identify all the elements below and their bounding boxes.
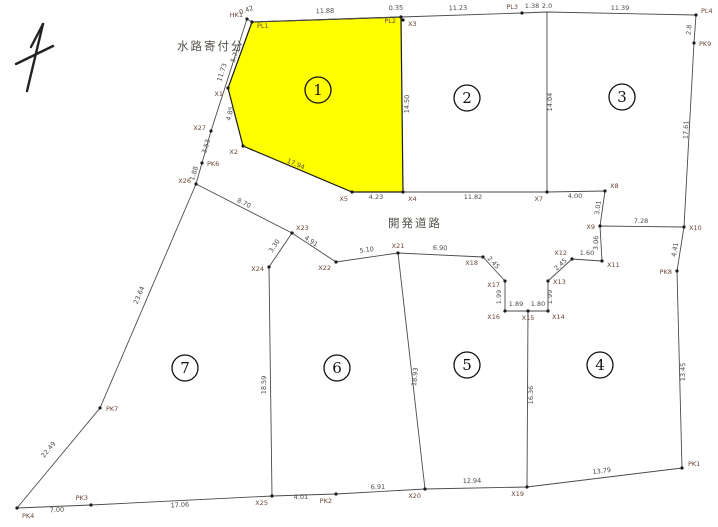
survey-point-PK7 bbox=[98, 406, 101, 409]
distance-label: 1.60 bbox=[580, 249, 594, 257]
point-label-X7: X7 bbox=[534, 195, 543, 203]
parcel-1-highlight bbox=[228, 17, 403, 192]
parcel-layer bbox=[228, 17, 403, 192]
distance-label: 12.94 bbox=[463, 477, 482, 485]
survey-point-X27 bbox=[209, 129, 212, 132]
point-label-X25: X25 bbox=[255, 499, 268, 507]
point-label-PK9: PK9 bbox=[699, 40, 711, 48]
survey-point-PK1 bbox=[680, 466, 683, 469]
point-label-PK6: PK6 bbox=[207, 160, 219, 168]
point-label-PL4: PL4 bbox=[701, 7, 713, 15]
distance-label: 4.41 bbox=[670, 242, 680, 258]
parcel-number-2: 2 bbox=[462, 89, 472, 107]
point-label-X19: X19 bbox=[511, 490, 524, 498]
point-label-X10: X10 bbox=[689, 224, 702, 232]
parcel-number-5: 5 bbox=[462, 356, 472, 374]
point-label-X24: X24 bbox=[251, 265, 264, 273]
point-label-X13: X13 bbox=[553, 278, 566, 286]
point-label-PK3: PK3 bbox=[76, 494, 88, 502]
point-label-PK8: PK8 bbox=[660, 268, 672, 276]
distance-label: 11.73 bbox=[215, 62, 228, 82]
point-label-PK2: PK2 bbox=[320, 497, 332, 505]
point-label-X18: X18 bbox=[465, 259, 478, 267]
parcel4-northwest-corner bbox=[600, 226, 602, 261]
parcel-number-7: 7 bbox=[180, 359, 190, 377]
survey-point-X20 bbox=[423, 487, 426, 490]
survey-point-PL1 bbox=[250, 20, 253, 23]
distance-label: 4.23 bbox=[369, 193, 383, 201]
parcel-number-3: 3 bbox=[617, 88, 627, 106]
survey-point-PK3 bbox=[89, 503, 92, 506]
distance-label: 7.28 bbox=[634, 217, 648, 225]
survey-point-PK2 bbox=[334, 492, 337, 495]
point-label-PK4: PK4 bbox=[22, 512, 34, 520]
point-label-X14: X14 bbox=[552, 313, 565, 321]
left-boundary bbox=[17, 184, 196, 508]
distance-label: 22.49 bbox=[39, 440, 57, 459]
right-boundary bbox=[677, 15, 696, 468]
distance-label: 1.99 bbox=[495, 290, 503, 304]
survey-point-PL4 bbox=[694, 13, 697, 16]
point-label-PK7: PK7 bbox=[106, 405, 118, 413]
point-label-X8: X8 bbox=[610, 182, 619, 190]
road-south-edge bbox=[292, 233, 483, 262]
distance-label: 5.10 bbox=[359, 245, 374, 255]
survey-point-PL3 bbox=[520, 11, 523, 14]
point-label-X5: X5 bbox=[339, 195, 348, 203]
survey-point-X11 bbox=[600, 259, 603, 262]
survey-point-X7 bbox=[545, 190, 548, 193]
point-label-X23: X23 bbox=[296, 224, 309, 232]
distance-label: 3.53 bbox=[200, 138, 212, 154]
water-channel-label: 水路寄付分 bbox=[177, 39, 245, 53]
survey-point-X23 bbox=[290, 231, 293, 234]
survey-point-X2 bbox=[241, 144, 244, 147]
survey-point-X22 bbox=[334, 260, 337, 263]
survey-map-page: HK1PL1PL2X3PL3PL4PK9X10PK8PK1X19X20PK2X2… bbox=[0, 0, 718, 527]
distance-label: 13.45 bbox=[679, 363, 687, 382]
distance-label: 1.88 bbox=[188, 165, 200, 181]
distance-label: 13.79 bbox=[592, 466, 611, 476]
distance-label: 7.00 bbox=[49, 506, 64, 515]
distance-label: 18.59 bbox=[260, 376, 268, 395]
survey-point-X14 bbox=[546, 309, 549, 312]
survey-point-X26 bbox=[194, 182, 197, 185]
distance-label: 1.89 bbox=[509, 300, 523, 308]
point-label-X27: X27 bbox=[193, 124, 206, 132]
survey-point-X3 bbox=[401, 18, 404, 21]
survey-point-X24 bbox=[267, 265, 270, 268]
survey-point-X21 bbox=[396, 251, 399, 254]
survey-point-HK1 bbox=[245, 17, 248, 20]
north-arrow-icon bbox=[16, 24, 53, 91]
survey-point-X13 bbox=[546, 279, 549, 282]
distance-label: 2.8 bbox=[685, 24, 694, 35]
distance-label: 14.50 bbox=[403, 95, 411, 114]
point-label-X22: X22 bbox=[318, 264, 331, 272]
distance-label: 4.91 bbox=[303, 234, 320, 249]
road-label: 開発道路 bbox=[388, 216, 442, 230]
point-label-X20: X20 bbox=[408, 492, 421, 500]
distance-label: 23.64 bbox=[132, 285, 147, 305]
point-label-PK1: PK1 bbox=[688, 460, 700, 468]
distance-label: 17.06 bbox=[170, 501, 189, 510]
distance-label: 11.88 bbox=[315, 7, 334, 16]
bottom-boundary bbox=[17, 468, 682, 508]
survey-point-X10 bbox=[682, 225, 685, 228]
distance-label: 4.01 bbox=[294, 493, 309, 502]
distance-label: 1.80 bbox=[531, 300, 545, 308]
divider-7-6 bbox=[269, 267, 272, 496]
distance-label: 17.61 bbox=[682, 120, 691, 139]
survey-point-X16 bbox=[503, 309, 506, 312]
point-label-X9: X9 bbox=[586, 223, 595, 231]
distance-label: 18.93 bbox=[410, 367, 420, 386]
point-label-X16: X16 bbox=[487, 313, 500, 321]
distance-label: 4.85 bbox=[224, 106, 235, 122]
distance-label: 4.00 bbox=[568, 192, 582, 200]
point-label-X21: X21 bbox=[392, 242, 405, 250]
point-label-X15: X15 bbox=[522, 314, 535, 322]
distance-label: 2.0 bbox=[542, 2, 552, 10]
survey-point-X15 bbox=[526, 309, 529, 312]
point-label-X11: X11 bbox=[607, 261, 620, 269]
distance-label: 0.42 bbox=[238, 4, 254, 16]
distance-label: 0.35 bbox=[389, 4, 404, 13]
survey-point-X19 bbox=[525, 485, 528, 488]
distance-label: 1.38 bbox=[525, 2, 539, 10]
distance-label: 6.91 bbox=[371, 483, 386, 492]
distance-label: 14.04 bbox=[546, 93, 554, 112]
distance-label: 11.82 bbox=[464, 193, 483, 201]
point-label-PL1: PL1 bbox=[257, 22, 269, 30]
survey-point-PK8 bbox=[675, 269, 678, 272]
parcel7-north-edge bbox=[196, 184, 292, 233]
parcel-number-6: 6 bbox=[332, 359, 342, 377]
distance-label: 16.36 bbox=[527, 386, 535, 405]
survey-point-PL2 bbox=[399, 15, 402, 18]
survey-point-PK9 bbox=[692, 41, 695, 44]
parcel-number-4: 4 bbox=[595, 356, 605, 374]
survey-point-X17 bbox=[503, 279, 506, 282]
point-label-X17: X17 bbox=[487, 281, 500, 289]
survey-point-X9 bbox=[598, 224, 601, 227]
survey-point-X5 bbox=[350, 190, 353, 193]
distance-label: 11.39 bbox=[611, 4, 630, 12]
point-label-X4: X4 bbox=[408, 195, 417, 203]
point-label-X1: X1 bbox=[214, 90, 223, 98]
survey-point-PK4 bbox=[15, 506, 18, 509]
point-label-X2: X2 bbox=[229, 148, 238, 156]
survey-map-canvas: HK1PL1PL2X3PL3PL4PK9X10PK8PK1X19X20PK2X2… bbox=[0, 0, 718, 527]
point-label-PL3: PL3 bbox=[506, 3, 518, 11]
survey-point-X8 bbox=[603, 189, 606, 192]
distance-label: 6.90 bbox=[433, 244, 448, 253]
point-label-X3: X3 bbox=[408, 20, 417, 28]
survey-point-X18 bbox=[481, 255, 484, 258]
point-label-PL2: PL2 bbox=[384, 17, 396, 25]
parcel-number-1: 1 bbox=[313, 81, 323, 99]
survey-point-X12 bbox=[570, 257, 573, 260]
survey-point-X25 bbox=[270, 494, 273, 497]
road-stub-to-boundary bbox=[600, 226, 684, 227]
distance-label: 1.99 bbox=[546, 290, 554, 304]
survey-point-X4 bbox=[401, 190, 404, 193]
survey-point-PK6 bbox=[200, 161, 203, 164]
point-label-X12: X12 bbox=[554, 249, 567, 257]
distance-label: 11.23 bbox=[448, 4, 467, 13]
survey-point-X1 bbox=[226, 86, 229, 89]
